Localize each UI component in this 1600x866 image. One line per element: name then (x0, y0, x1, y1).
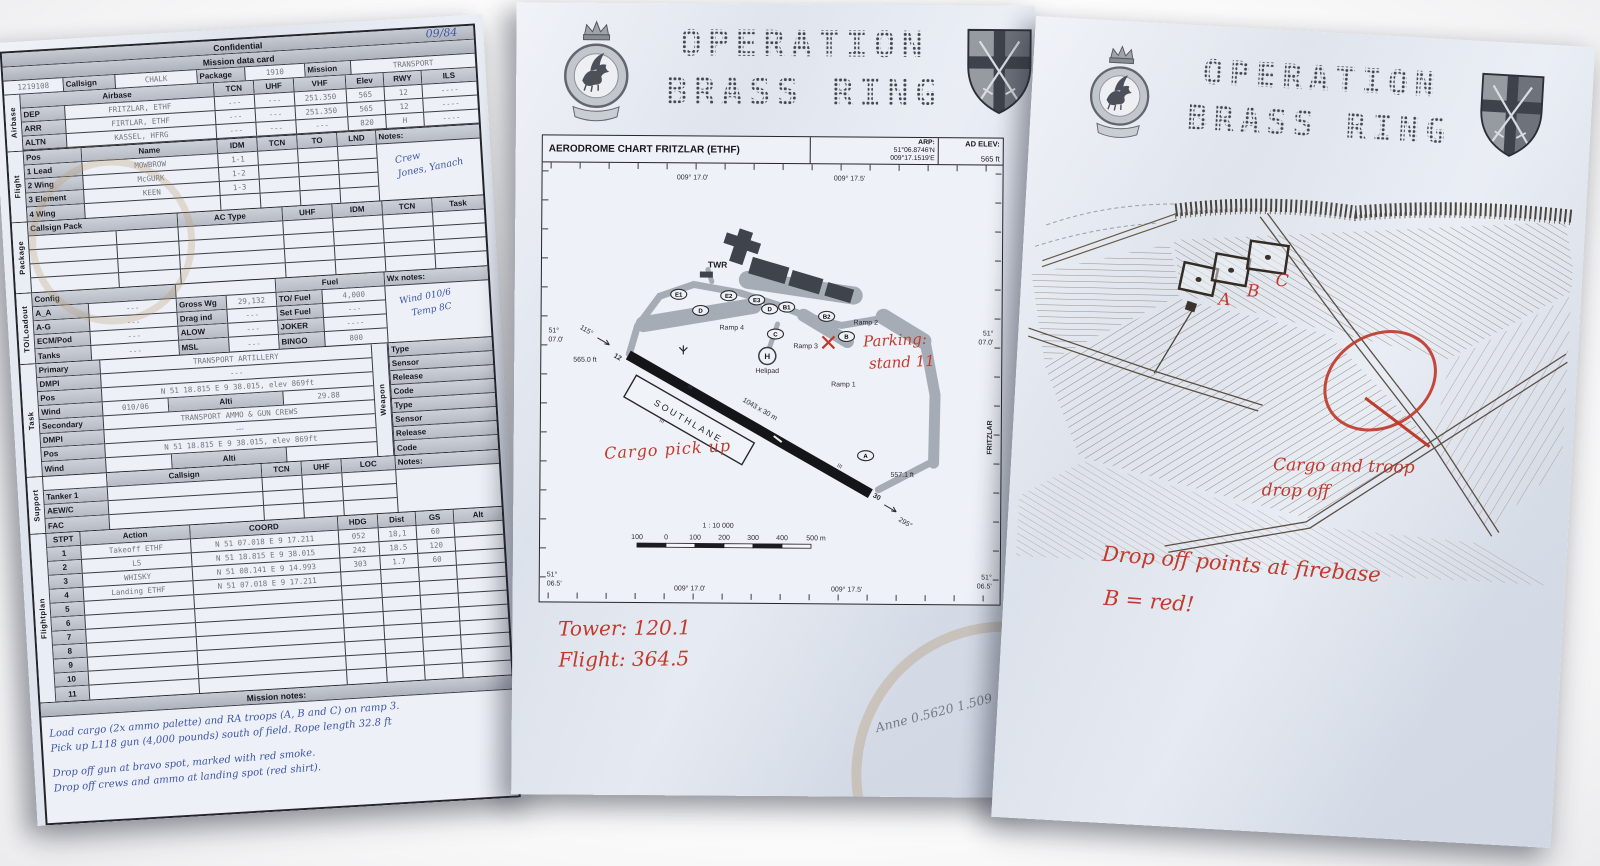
aerodrome-chart-frame: AERODROME CHART FRITZLAR (ETHF) ARP: 51°… (539, 134, 1004, 605)
field-sketch: A B C Cargo and troop drop off (1016, 166, 1577, 586)
svg-text:0: 0 (664, 534, 668, 541)
svg-text:D: D (767, 307, 772, 313)
svg-text:E1: E1 (675, 293, 683, 299)
crew-handwriting: CrewJones, Yanach (394, 141, 465, 182)
svg-text:51°: 51° (548, 326, 559, 334)
svg-text:200: 200 (718, 535, 730, 542)
svg-text:OPERATION: OPERATION (1202, 52, 1442, 105)
svg-text:295°: 295° (897, 516, 914, 530)
mission-data-card-sheet: 09/84 Confidential Mission data card 121… (0, 14, 529, 826)
svg-text:OPERATION: OPERATION (680, 23, 929, 66)
svg-text:B2: B2 (823, 315, 831, 321)
chart-elev: AD ELEV: 565 ft (939, 138, 1003, 164)
svg-text:07.0': 07.0' (978, 339, 993, 346)
svg-text:B1: B1 (783, 305, 791, 311)
ramp4-label: Ramp 4 (719, 325, 744, 332)
svg-text:C: C (1275, 271, 1289, 292)
ramp3-label: Ramp 3 (793, 343, 818, 350)
field-sketch-sheet: OPERATION BRASS RING (991, 16, 1595, 848)
brigade-shield-icon (1477, 71, 1546, 160)
svg-text:1 : 10 000: 1 : 10 000 (703, 523, 734, 530)
lon-label: 009° 17.5' (834, 174, 865, 182)
chart-arp: ARP: 51°06.8746'N 009°17.1519'E (811, 137, 939, 164)
svg-text:51°: 51° (983, 329, 994, 337)
svg-text:565.0 ft: 565.0 ft (573, 357, 596, 364)
flight-frequency: Flight: 364.5 (558, 643, 691, 675)
mission-data-card: Confidential Mission data card 1219108 C… (0, 24, 521, 826)
desk-scan: 09/84 Confidential Mission data card 121… (0, 0, 1600, 866)
svg-text:07.0': 07.0' (548, 336, 563, 343)
squadron-crest-icon (1070, 40, 1168, 157)
wx-notes-column: Wx notes: Wind 010/6Temp 8C (383, 266, 491, 342)
firebase-note-line2: B = red! (1103, 586, 1195, 617)
runway (627, 355, 871, 494)
svg-text:06.5': 06.5' (547, 580, 562, 587)
tower-frequency: Tower: 120.1 (558, 612, 691, 644)
svg-text:drop off: drop off (1261, 480, 1332, 501)
svg-text:557.1 ft: 557.1 ft (890, 472, 913, 479)
svg-text:B: B (844, 335, 849, 341)
windsock-icon (679, 345, 687, 354)
svg-text:A: A (1216, 290, 1231, 311)
aerodrome-map: 009° 17.0' 009° 17.5' 009° 17.0' 009° 17… (540, 162, 1002, 603)
date-annotation: 09/84 (425, 26, 457, 41)
wx-handwriting: Wind 010/6Temp 8C (398, 285, 455, 322)
svg-text:stand 11: stand 11 (869, 352, 936, 373)
svg-text:E3: E3 (753, 298, 761, 304)
svg-text:06.5': 06.5' (977, 583, 992, 590)
parking-note: Parking: (862, 330, 927, 351)
svg-text:009° 17.5': 009° 17.5' (831, 585, 862, 593)
lon-label: 009° 17.0' (677, 173, 708, 181)
svg-text:115°: 115° (578, 323, 594, 337)
svg-text:BRASS RING: BRASS RING (1186, 98, 1453, 153)
ramp2-label: Ramp 2 (854, 320, 879, 327)
svg-text:100: 100 (689, 534, 701, 541)
svg-text:C: C (773, 332, 778, 338)
flight-notes-column: Notes: CrewJones, Yanach (375, 125, 483, 201)
brigade-shield-icon (966, 27, 1033, 115)
squadron-crest-icon (546, 18, 647, 139)
svg-text:500 m: 500 m (806, 535, 826, 542)
scale-bar: 1 : 10 000 100 0 100 200 300 400 500 m (631, 522, 826, 548)
svg-text:12: 12 (612, 353, 622, 363)
svg-text:400: 400 (776, 535, 788, 542)
drop-zone-note: Cargo and troop (1273, 455, 1415, 478)
svg-text:E2: E2 (725, 294, 733, 300)
tower-label: TWR (708, 260, 727, 270)
support-notes-column: Notes: (394, 450, 501, 512)
svg-text:51°: 51° (547, 570, 558, 578)
svg-text:100: 100 (631, 534, 643, 541)
operation-title: OPERATION BRASS RING (654, 21, 955, 123)
svg-text:D: D (698, 309, 703, 315)
flightplan-section: Flightplan STPT Action COORD HDG Dist GS… (30, 507, 511, 704)
operation-title: OPERATION BRASS RING (1173, 50, 1468, 162)
chart-title: AERODROME CHART FRITZLAR (ETHF) (543, 135, 811, 163)
helipad: H Helipad (755, 347, 779, 375)
svg-text:300: 300 (747, 535, 759, 542)
svg-text:009° 17.0': 009° 17.0' (674, 584, 705, 592)
pencil-signature: Anne 0.5620 1.509 (874, 690, 994, 735)
aerodrome-chart-sheet: OPERATION BRASS RING AERODROME CHART FRI… (511, 2, 1035, 798)
svg-text:Helipad: Helipad (755, 368, 779, 375)
cargo-note: Cargo pick up (604, 436, 732, 463)
frequency-notes: Tower: 120.1 Flight: 364.5 (558, 612, 691, 675)
ramp1-label: Ramp 1 (831, 381, 856, 388)
weapon-column: Type Sensor Release Code Type Sensor Rel… (388, 337, 498, 455)
svg-text:BRASS RING: BRASS RING (666, 71, 943, 114)
svg-text:A: A (863, 454, 868, 460)
svg-text:30: 30 (871, 492, 881, 502)
chart-side-label: FRITZLAR (987, 420, 994, 454)
svg-text:H: H (764, 352, 770, 361)
svg-text:51°: 51° (981, 573, 992, 581)
svg-text:B: B (1245, 281, 1260, 302)
parking-x-mark (822, 336, 834, 348)
